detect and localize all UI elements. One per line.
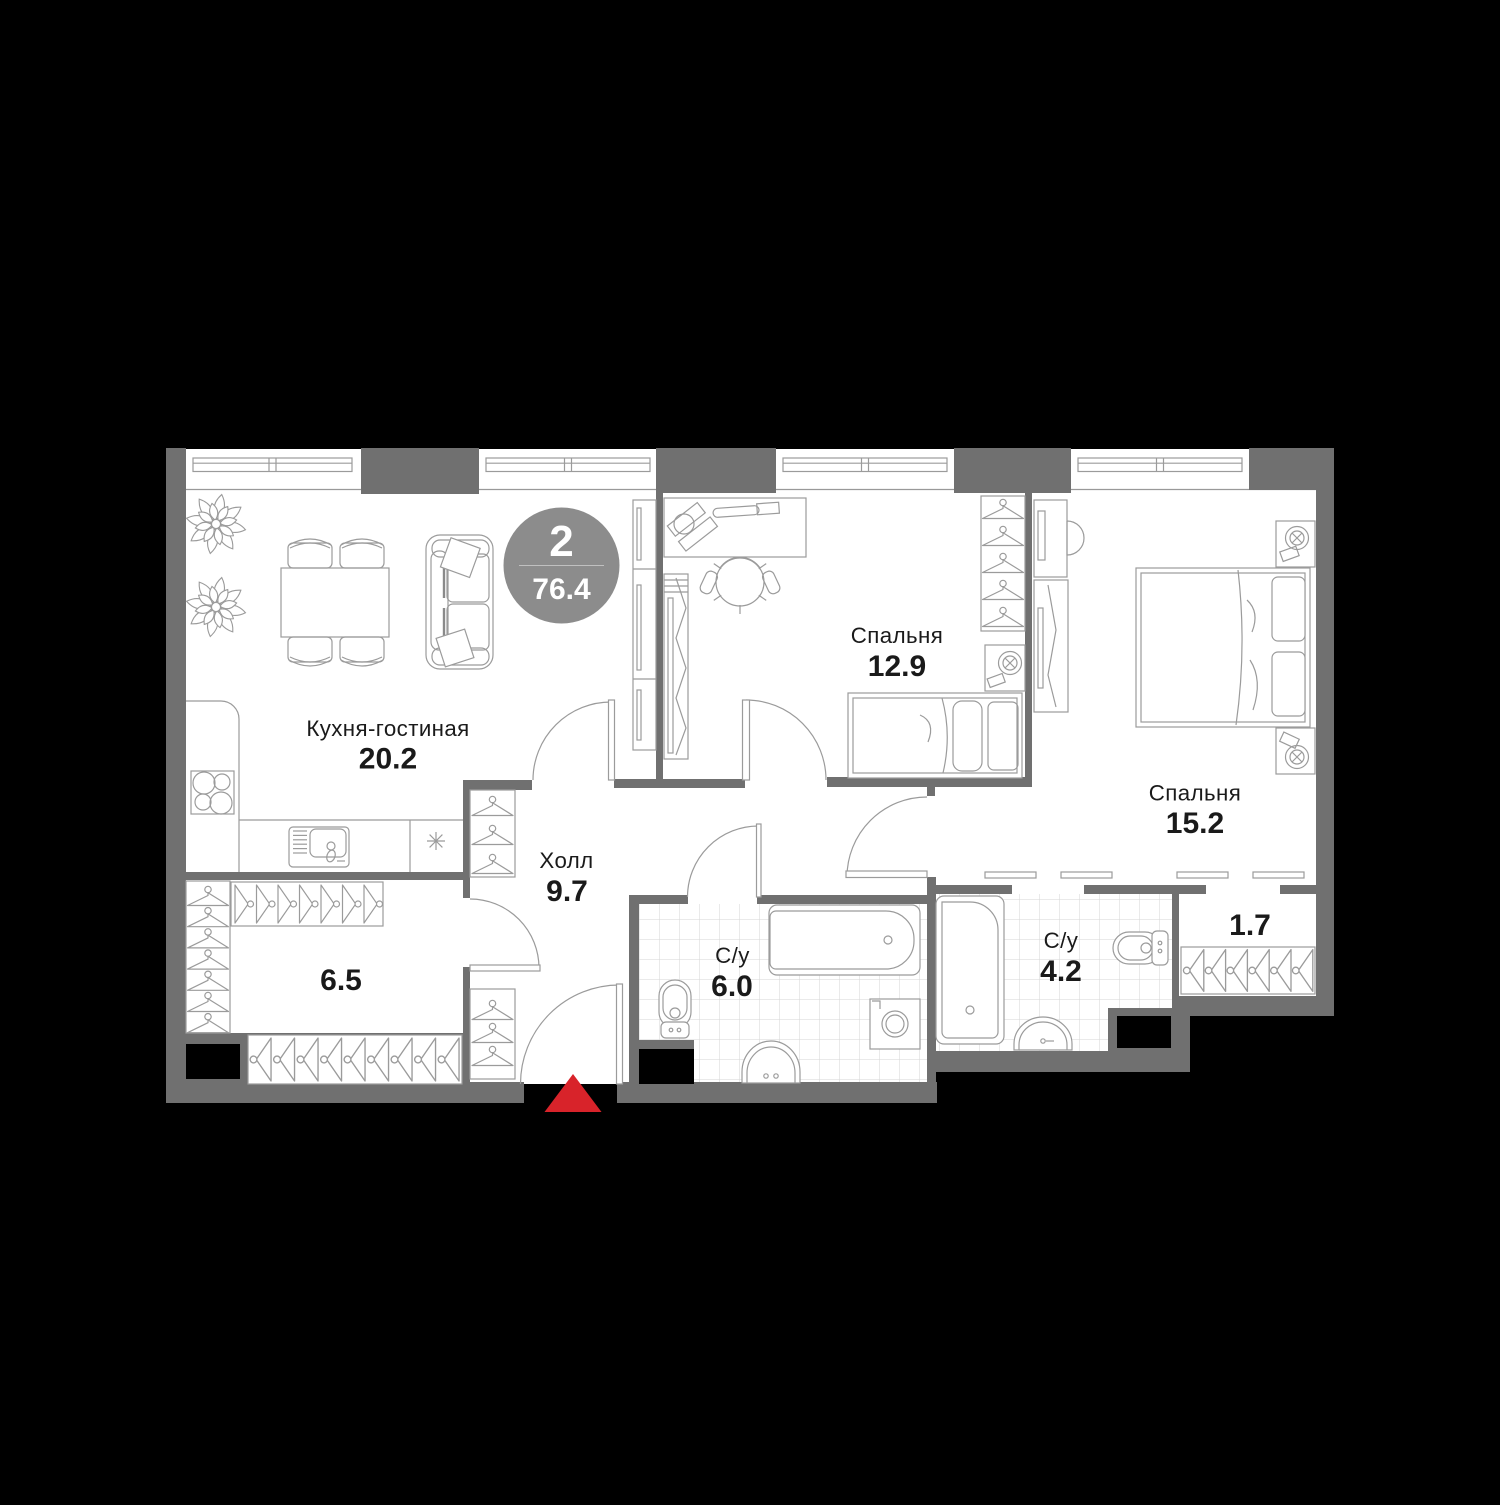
svg-text:Спальня: Спальня — [851, 623, 943, 648]
svg-text:2: 2 — [549, 517, 573, 566]
svg-text:20.2: 20.2 — [359, 743, 417, 776]
svg-text:1.7: 1.7 — [1229, 909, 1271, 942]
svg-text:С/у: С/у — [715, 943, 750, 968]
svg-text:6.5: 6.5 — [320, 964, 362, 997]
svg-text:С/у: С/у — [1044, 928, 1079, 953]
svg-text:9.7: 9.7 — [546, 875, 588, 908]
svg-text:12.9: 12.9 — [868, 650, 926, 683]
svg-text:Холл: Холл — [539, 848, 593, 873]
svg-text:Спальня: Спальня — [1149, 781, 1241, 806]
svg-text:4.2: 4.2 — [1040, 955, 1082, 988]
svg-text:15.2: 15.2 — [1166, 807, 1224, 840]
svg-text:76.4: 76.4 — [532, 573, 591, 606]
svg-text:Кухня-гостиная: Кухня-гостиная — [306, 716, 469, 741]
svg-text:6.0: 6.0 — [711, 970, 753, 1003]
